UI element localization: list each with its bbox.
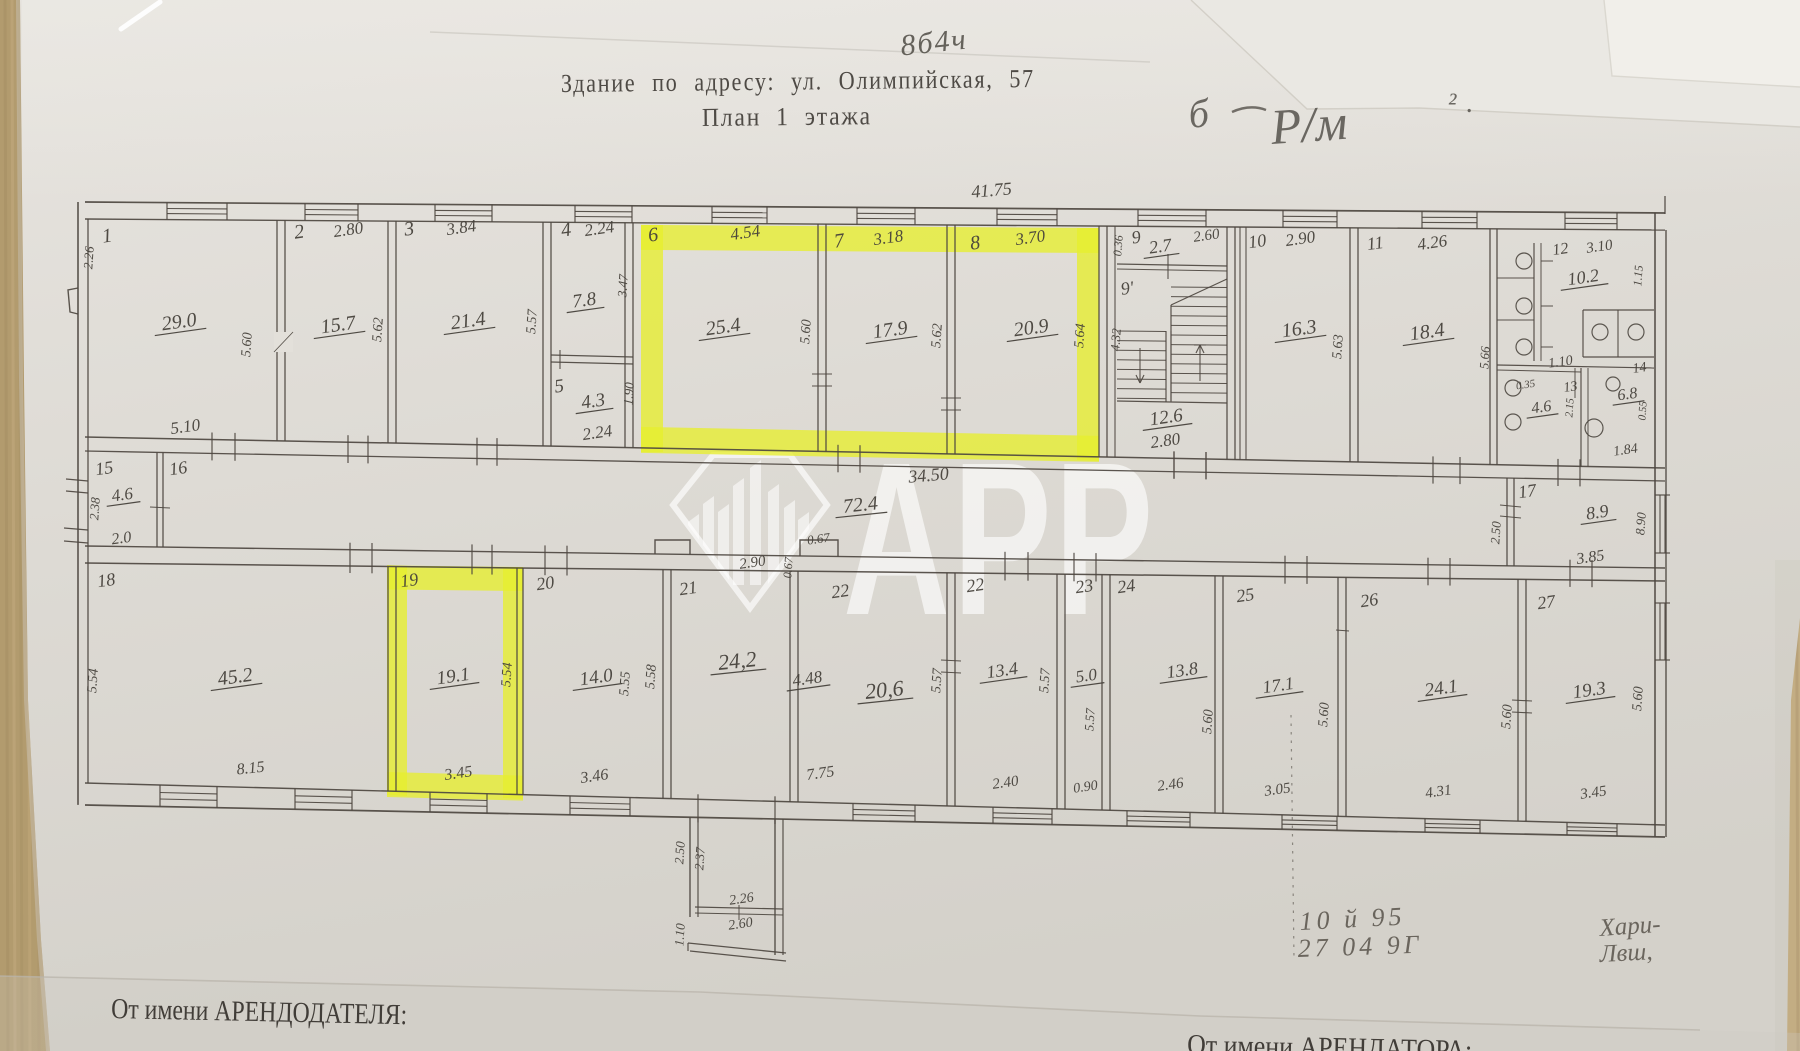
svg-text:0.55: 0.55: [1636, 400, 1649, 421]
svg-text:5.57: 5.57: [1081, 707, 1098, 731]
svg-text:8.15: 8.15: [236, 759, 266, 779]
svg-text:0.67: 0.67: [806, 529, 831, 547]
svg-text:3.47: 3.47: [614, 273, 631, 298]
svg-text:5.62: 5.62: [929, 323, 946, 348]
svg-text:5.60: 5.60: [1499, 704, 1516, 729]
svg-text:2.50: 2.50: [671, 840, 688, 864]
svg-text:21: 21: [678, 577, 699, 599]
svg-text:2.38: 2.38: [86, 496, 103, 520]
svg-text:5.62: 5.62: [370, 317, 387, 342]
svg-text:2.37: 2.37: [691, 846, 708, 870]
svg-text:5.57: 5.57: [929, 667, 946, 693]
svg-text:От имени АРЕНДОДАТЕЛЯ:: От имени АРЕНДОДАТЕЛЯ:: [111, 993, 408, 1031]
svg-text:2.0: 2.0: [110, 529, 132, 549]
svg-text:22: 22: [830, 580, 851, 602]
svg-text:8.90: 8.90: [1632, 511, 1649, 535]
svg-text:2.7: 2.7: [1148, 234, 1174, 257]
svg-text:5.0: 5.0: [1074, 665, 1098, 687]
svg-text:13: 13: [1563, 379, 1579, 396]
svg-text:4.6: 4.6: [110, 484, 134, 506]
svg-text:2.50: 2.50: [1487, 520, 1504, 544]
svg-text:8.9: 8.9: [1585, 501, 1610, 524]
svg-text:5.58: 5.58: [643, 664, 660, 689]
svg-text:16: 16: [168, 457, 189, 479]
svg-text:5.64: 5.64: [1072, 323, 1089, 348]
svg-text:14: 14: [1632, 360, 1648, 377]
svg-text:24: 24: [1116, 575, 1137, 597]
svg-text:22: 22: [965, 574, 986, 596]
svg-text:План 1 этажа: План 1 этажа: [702, 101, 872, 132]
svg-text:5.54: 5.54: [499, 662, 516, 687]
svg-text:0.67: 0.67: [780, 556, 796, 579]
svg-text:0.36: 0.36: [1110, 235, 1125, 257]
svg-text:23: 23: [1074, 575, 1095, 597]
svg-text:27 04 9Г: 27 04 9Г: [1297, 930, 1423, 963]
svg-text:1.10: 1.10: [671, 922, 688, 946]
svg-text:1.90: 1.90: [620, 381, 637, 405]
svg-text:5.55: 5.55: [617, 671, 634, 696]
svg-text:1.15: 1.15: [1630, 265, 1645, 287]
svg-text:19: 19: [399, 569, 420, 591]
svg-text:4.6: 4.6: [1530, 398, 1552, 418]
svg-text:Лвш,: Лвш,: [1598, 938, 1653, 968]
svg-text:6.8: 6.8: [1616, 385, 1638, 405]
svg-text:11: 11: [1366, 232, 1385, 254]
svg-text:5.60: 5.60: [798, 319, 815, 344]
svg-text:5.60: 5.60: [239, 332, 256, 357]
svg-text:12: 12: [1551, 240, 1569, 259]
svg-text:5.60: 5.60: [1316, 702, 1333, 727]
svg-text:15: 15: [94, 457, 115, 479]
svg-text:34.50: 34.50: [906, 463, 949, 487]
svg-text:10: 10: [1247, 230, 1268, 252]
svg-text:5.57: 5.57: [524, 308, 541, 334]
svg-text:2.15: 2.15: [1563, 397, 1576, 418]
svg-text:5.57: 5.57: [1037, 667, 1054, 693]
svg-text:41.75: 41.75: [970, 178, 1012, 201]
svg-text:18: 18: [96, 569, 117, 591]
svg-text:Здание по адресу: ул. Олимпийс: Здание по адресу: ул. Олимпийская, 57: [561, 64, 1035, 98]
svg-text:5.63: 5.63: [1330, 334, 1347, 359]
svg-text:Р/м: Р/м: [1268, 94, 1349, 155]
svg-text:5.66: 5.66: [1476, 345, 1493, 369]
svg-text:Хари-: Хари-: [1598, 911, 1662, 942]
svg-text:26: 26: [1359, 589, 1380, 611]
svg-text:5.54: 5.54: [85, 668, 102, 693]
svg-text:25: 25: [1235, 584, 1256, 606]
svg-text:20: 20: [535, 572, 556, 594]
svg-text:2.26: 2.26: [80, 245, 97, 269]
svg-text:5.60: 5.60: [1200, 709, 1217, 734]
svg-text:8б4ч: 8б4ч: [899, 23, 969, 63]
svg-text:5.60: 5.60: [1630, 686, 1647, 711]
svg-text:4.32: 4.32: [1107, 327, 1124, 351]
